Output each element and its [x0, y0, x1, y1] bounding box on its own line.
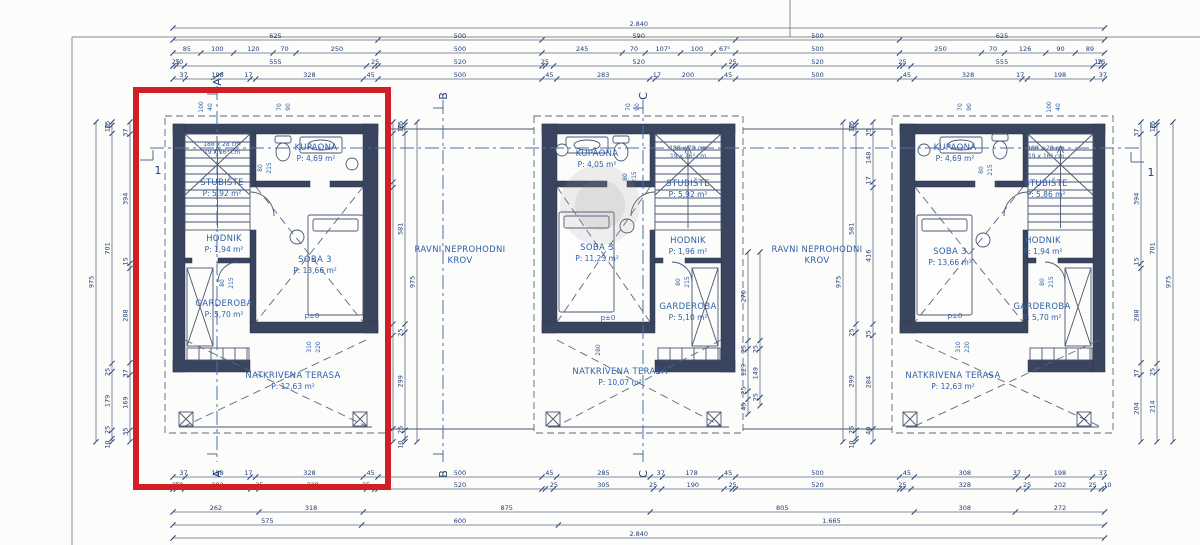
text-label: 80 [675, 278, 682, 286]
dim-label: 10 [397, 441, 405, 449]
text-label: P: 12,63 m² [931, 382, 975, 391]
dim-label: 288 [1133, 309, 1141, 321]
dim-label: 70 [989, 45, 997, 53]
text-label: P: 1,96 m² [669, 247, 708, 256]
dim-label: 45 [545, 469, 553, 477]
room-label-kupaona: KUPAONAP: 4,05 m² [576, 149, 619, 169]
dim-label: 500 [454, 32, 466, 40]
text-label: P: 4,69 m² [936, 154, 975, 163]
wall-segment [1028, 360, 1093, 372]
text-label: P: 12,63 m² [271, 382, 315, 391]
text-label: 220 [315, 341, 322, 353]
text-label: GARDEROBA [195, 299, 252, 309]
wall-segment [1093, 124, 1105, 372]
dim-label: 284 [865, 376, 873, 388]
dim-label: 701 [1149, 242, 1157, 254]
dim-label: 198 [1054, 71, 1066, 79]
dim-label: 198 [211, 71, 223, 79]
stair-note: 188 x 28 cm19 x 16⁵ cm [1027, 145, 1065, 160]
dim-label: 25 [848, 121, 856, 129]
v-dim-chain: 37394152883716935 [122, 119, 133, 444]
text-label: 100 [1046, 101, 1053, 113]
text-label: 310 [955, 341, 962, 353]
dim-label: 40 [865, 427, 873, 435]
wall-segment [250, 322, 378, 333]
dim-label: 100 [691, 45, 703, 53]
roof-label: RAVNI NEPROHODNIKROV [772, 245, 863, 266]
text-label: NATKRIVENA TERASA [245, 371, 340, 381]
text-label: 215 [1048, 276, 1055, 288]
text-label: 80 [978, 166, 985, 174]
text-label: 80 [219, 279, 226, 287]
dim-label: 500 [454, 45, 466, 53]
v-dim-chain: 975 [835, 119, 846, 444]
v-dim-chain: 975 [88, 119, 99, 444]
dim-label: 10 [848, 441, 856, 449]
dim-label: 272 [1054, 504, 1066, 512]
dim-label: 500 [454, 71, 466, 79]
room-label-natkrivena-terasa: NATKRIVENA TERASAP: 12,63 m² [245, 371, 340, 391]
room-label-natkrivena-terasa: NATKRIVENA TERASAP: 12,63 m² [905, 371, 1000, 391]
text-label: KUPAONA [295, 143, 338, 153]
dim-label: 89 [1086, 45, 1094, 53]
wall-segment [650, 230, 655, 322]
dim-label: 25 [104, 121, 112, 129]
text-label: NATKRIVENA TERASA [572, 367, 667, 377]
dim-label: 250 [331, 45, 343, 53]
dim-label: 45 [724, 469, 732, 477]
dim-label: 25 [848, 329, 856, 337]
dim-label: 25 [649, 481, 657, 489]
dim-label: 70 [630, 45, 638, 53]
floor-plan-svg: AABBCC112.840625500590500625851001207025… [0, 0, 1200, 545]
dim-label: 308 [959, 469, 971, 477]
dim-label: 10 [1103, 481, 1111, 489]
v-dim-chain: 373941528837204 [1133, 119, 1144, 444]
text-label: KUPAONA [934, 143, 977, 153]
dim-label: 25 [752, 345, 760, 353]
wall-segment [173, 360, 250, 372]
dim-label: 198 [211, 469, 223, 477]
drawing-sheet: Floor plan drawing — second floor, three… [0, 0, 1200, 545]
dim-label: 500 [454, 469, 466, 477]
v-dim-chain: 975 [409, 119, 420, 444]
v-dim-chain: 1025581252992510 [397, 119, 408, 448]
dim-label: 875 [501, 504, 513, 512]
dim-label: 701 [104, 242, 112, 254]
dim-label: 202 [1054, 481, 1066, 489]
dim-label: 67⁵ [719, 45, 730, 53]
text-label: P: 4,05 m² [578, 160, 617, 169]
h-dim-chain: 2.840 [170, 20, 1107, 31]
dim-label: 198 [1054, 469, 1066, 477]
text-label: NATKRIVENA TERASA [905, 371, 1000, 381]
dim-label: 575 [261, 517, 273, 525]
text-label: GARDEROBA [659, 302, 716, 312]
text-label: STUBIŠTE [200, 176, 244, 188]
dim-label: 190 [687, 481, 699, 489]
dim-label: 107⁵ [655, 45, 670, 53]
h-dim-chain: 851001207025050024570107⁵10067⁵500250701… [170, 45, 1107, 56]
wall-segment [542, 124, 735, 134]
text-label: 220 [964, 341, 971, 353]
dim-label: 37 [1013, 469, 1021, 477]
dim-label: 25 [104, 368, 112, 376]
dim-label: 45 [903, 71, 911, 79]
text-label: 70 [625, 103, 632, 111]
dim-label: 500 [811, 45, 823, 53]
text-label: P: 13,66 m² [928, 258, 972, 267]
dim-label: 25 [740, 345, 748, 353]
roof-label: RAVNI NEPROHODNIKROV [415, 245, 506, 266]
room-label-stubi-te: STUBIŠTEP: 5,92 m² [200, 176, 244, 198]
dim-label: 45 [903, 469, 911, 477]
dim-label: 45 [724, 71, 732, 79]
dim-label: 520 [811, 58, 823, 66]
wall-segment [650, 134, 655, 187]
dim-label: 328 [303, 71, 315, 79]
wall-segment [900, 124, 915, 333]
dim-label: 975 [88, 276, 96, 288]
dim-label: 35 [122, 427, 130, 435]
text-label: 80 [1039, 278, 1046, 286]
h-dim-chain: 1025555255202552025520255552510 [170, 58, 1107, 69]
dim-label: 10 [104, 441, 112, 449]
dim-label: 590 [633, 32, 645, 40]
dim-label: 394 [1133, 193, 1141, 205]
room-label-stubi-te: STUBIŠTEP: 5,92 m² [666, 177, 710, 199]
dim-label: 581 [397, 223, 405, 235]
dim-label: 25 [397, 329, 405, 337]
wall-segment [330, 181, 363, 187]
wall-segment [363, 124, 378, 333]
dim-label: 17 [1016, 71, 1024, 79]
text-label: 188 x 28 cm [1027, 145, 1065, 152]
dim-label: 214 [1149, 400, 1157, 412]
text-label: HODNIK [670, 236, 706, 246]
text-label: 1 [1148, 166, 1155, 179]
text-label: 90 [966, 103, 973, 111]
dim-label: 149 [752, 367, 760, 379]
text-label: P: 5,70 m² [1023, 313, 1062, 322]
dim-label: 308 [959, 504, 971, 512]
dim-label: 270 [740, 290, 748, 302]
text-label: KROV [804, 256, 829, 266]
dim-label: 520 [454, 481, 466, 489]
dim-label: 1.665 [822, 517, 841, 525]
dim-label: 85 [183, 45, 191, 53]
text-label: P: 1,94 m² [1024, 247, 1063, 256]
h-dim-chain: 262318875805308272 [170, 504, 1107, 515]
room-label-natkrivena-terasa: NATKRIVENA TERASAP: 10,07 m² [572, 367, 667, 387]
text-label: p±0 [305, 312, 320, 320]
text-label: 215 [266, 162, 273, 174]
text-label: STUBIŠTE [1024, 177, 1068, 189]
dim-label: 288 [122, 309, 130, 321]
text-label: RAVNI NEPROHODNI [772, 245, 863, 255]
dim-label: 129 [740, 364, 748, 376]
text-label: P: 5,70 m² [205, 310, 244, 319]
v-dim-chain: 1025701251792510 [104, 119, 115, 448]
dim-label: 250 [934, 45, 946, 53]
dim-label: 975 [835, 276, 843, 288]
wall-segment [900, 322, 1028, 333]
dim-label: 25 [550, 481, 558, 489]
dim-label: 805 [776, 504, 788, 512]
wall-segment [173, 124, 378, 134]
room-label-stubi-te: STUBIŠTEP: 5,86 m² [1024, 177, 1068, 199]
wall-segment [995, 181, 1023, 187]
text-label: 215 [987, 164, 994, 176]
text-label: 280 [595, 344, 602, 356]
room-label-garderoba: GARDEROBAP: 5,70 m² [195, 299, 252, 319]
dim-label: 45 [740, 403, 748, 411]
dim-label: 500 [811, 71, 823, 79]
text-label: HODNIK [1025, 236, 1061, 246]
dim-label: 45 [366, 469, 374, 477]
dim-label: 500 [811, 32, 823, 40]
room-label-garderoba: GARDEROBAP: 5,70 m² [1013, 302, 1070, 322]
text-label: 215 [684, 276, 691, 288]
dim-label: 126 [1019, 45, 1031, 53]
dim-label: 520 [454, 58, 466, 66]
text-label: 90 [634, 103, 641, 111]
dim-label: 25 [728, 481, 736, 489]
v-dim-chain: 975 [1165, 119, 1176, 444]
v-dim-chain: 1025581252992510 [848, 119, 859, 448]
dim-label: 200 [682, 71, 694, 79]
wall-segment [256, 181, 310, 187]
dim-label: 15 [1133, 257, 1141, 265]
dim-label: 2.840 [629, 20, 648, 28]
dim-label: 25 [740, 387, 748, 395]
wall-segment [721, 124, 735, 372]
dim-label: 178 [685, 469, 697, 477]
text-label: 19 x 16⁵ cm [204, 149, 240, 156]
dim-label: 70 [280, 45, 288, 53]
text-label: P: 1,94 m² [205, 245, 244, 254]
dim-label: 318 [305, 504, 317, 512]
v-dim-chain: 2514925 [752, 249, 763, 408]
text-label: P: 5,92 m² [669, 190, 708, 199]
dim-label: 169 [122, 396, 130, 408]
dim-label: 25 [397, 426, 405, 434]
dim-label: 328 [303, 469, 315, 477]
text-label: 90 [285, 103, 292, 111]
dim-label: 25 [1149, 121, 1157, 129]
dim-label: 25 [728, 58, 736, 66]
dim-label: 416 [865, 250, 873, 262]
dim-label: 245 [576, 45, 588, 53]
wall-segment [900, 124, 1105, 134]
dim-label: 520 [633, 58, 645, 66]
text-label: SOBA 3 [580, 243, 614, 253]
dim-label: 45 [366, 71, 374, 79]
text-label: 100 [198, 101, 205, 113]
text-label: GARDEROBA [1013, 302, 1070, 312]
text-label: 70 [957, 103, 964, 111]
dim-label: 25 [104, 426, 112, 434]
text-label: 80 [257, 164, 264, 172]
wall-segment [685, 258, 721, 263]
dim-label: 500 [811, 469, 823, 477]
wall-segment [250, 134, 256, 187]
text-label: 215 [228, 277, 235, 289]
dim-label: 600 [454, 517, 466, 525]
v-dim-chain: 270251292545 [740, 249, 751, 416]
dim-label: 25 [371, 58, 379, 66]
text-label: P: 5,92 m² [203, 189, 242, 198]
dim-label: 305 [597, 481, 609, 489]
text-label: 70 [276, 103, 283, 111]
text-label: SOBA 3 [933, 247, 967, 257]
dim-label: 25 [752, 393, 760, 401]
room-label-hodnik: HODNIKP: 1,96 m² [669, 236, 708, 256]
text-label: KROV [447, 256, 472, 266]
text-label: KUPAONA [576, 149, 619, 159]
text-label: p±0 [948, 312, 963, 320]
text-label: 40 [207, 103, 214, 111]
dim-label: 90 [1056, 45, 1064, 53]
dim-label: 25 [1023, 481, 1031, 489]
text-label: 1 [155, 164, 162, 177]
dim-label: 17 [244, 469, 252, 477]
h-dim-chain: 5756001.665 [170, 517, 1107, 528]
wall-segment [655, 258, 663, 263]
text-label: 188 x 28 cm [203, 141, 241, 148]
wall-segment [1058, 258, 1093, 263]
dim-label: 25 [848, 426, 856, 434]
text-label: 310 [306, 341, 313, 353]
dim-label: 520 [811, 481, 823, 489]
room-label-hodnik: HODNIKP: 1,94 m² [1024, 236, 1063, 256]
text-label: 19 x 16⁵ cm [1028, 153, 1064, 160]
dim-label: 120 [247, 45, 259, 53]
dim-label: 179 [104, 395, 112, 407]
text-label: P: 11,23 m² [575, 254, 619, 263]
text-label: STUBIŠTE [666, 177, 710, 189]
dim-label: 100 [211, 45, 223, 53]
sheet-frame [72, 0, 1200, 545]
dim-label: 25 [1088, 481, 1096, 489]
text-label: SOBA 3 [298, 255, 332, 265]
dim-label: 10 [1094, 58, 1102, 66]
text-label: P: 5,86 m² [1027, 190, 1066, 199]
text-label: HODNIK [206, 234, 242, 244]
wall-segment [915, 181, 975, 187]
dim-label: 25 [172, 58, 180, 66]
dim-label: 555 [996, 58, 1008, 66]
wall-segment [1028, 258, 1036, 263]
dim-label: 25 [898, 481, 906, 489]
wall-segment [542, 124, 557, 333]
v-dim-chain: 35148174163528440 [865, 119, 876, 444]
room-label-hodnik: HODNIKP: 1,94 m² [205, 234, 244, 254]
text-label: P: 13,66 m² [293, 266, 337, 275]
dim-label: 555 [269, 58, 281, 66]
text-label: p±0 [601, 314, 616, 322]
stair-note: 188 x 28 cm19 x 16⁵ cm [203, 141, 241, 156]
room-label-garderoba: GARDEROBAP: 5,10 m² [659, 302, 716, 322]
dim-label: 2.840 [629, 530, 648, 538]
dim-label: 328 [959, 481, 971, 489]
stair-note: 188 x 28 cm19 x 16⁵ cm [669, 145, 707, 160]
dim-label: 148 [865, 152, 873, 164]
text-label: B [437, 92, 450, 100]
dim-label: 25 [1149, 368, 1157, 376]
dim-label: 25 [541, 58, 549, 66]
wall-segment [185, 258, 192, 263]
text-label: P: 4,69 m² [297, 154, 336, 163]
dim-label: 25 [898, 58, 906, 66]
dim-label: 581 [848, 223, 856, 235]
text-label: 80 [622, 173, 629, 181]
dim-label: 17 [865, 176, 873, 184]
text-label: 188 x 28 cm [669, 145, 707, 152]
dim-label: 25 [397, 121, 405, 129]
dim-label: 328 [962, 71, 974, 79]
dim-label: 204 [1133, 402, 1141, 414]
dim-label: 625 [996, 32, 1008, 40]
dim-label: 285 [597, 469, 609, 477]
dim-label: 625 [269, 32, 281, 40]
text-label: C [637, 92, 650, 100]
dim-label: 45 [545, 71, 553, 79]
text-label: P: 5,10 m² [669, 313, 708, 322]
wall-segment [173, 124, 185, 372]
text-label: RAVNI NEPROHODNI [415, 245, 506, 255]
dim-label: 15 [122, 257, 130, 265]
text-label: 19 x 16⁵ cm [670, 153, 706, 160]
h-dim-chain: 3719817328455004528317200455004532817198… [170, 71, 1107, 82]
h-dim-chain: 2.840 [170, 530, 1107, 541]
text-label: P: 10,07 m² [598, 378, 642, 387]
wall-segment [542, 322, 655, 333]
dim-label: 262 [210, 504, 222, 512]
dim-label: 283 [597, 71, 609, 79]
dim-label: 975 [1165, 276, 1173, 288]
text-label: 40 [1055, 103, 1062, 111]
dim-label: 975 [409, 276, 417, 288]
text-label: 215 [631, 171, 638, 183]
dim-label: 299 [848, 375, 856, 387]
dim-label: 17 [244, 71, 252, 79]
dim-label: 299 [397, 375, 405, 387]
dim-label: 394 [122, 193, 130, 205]
